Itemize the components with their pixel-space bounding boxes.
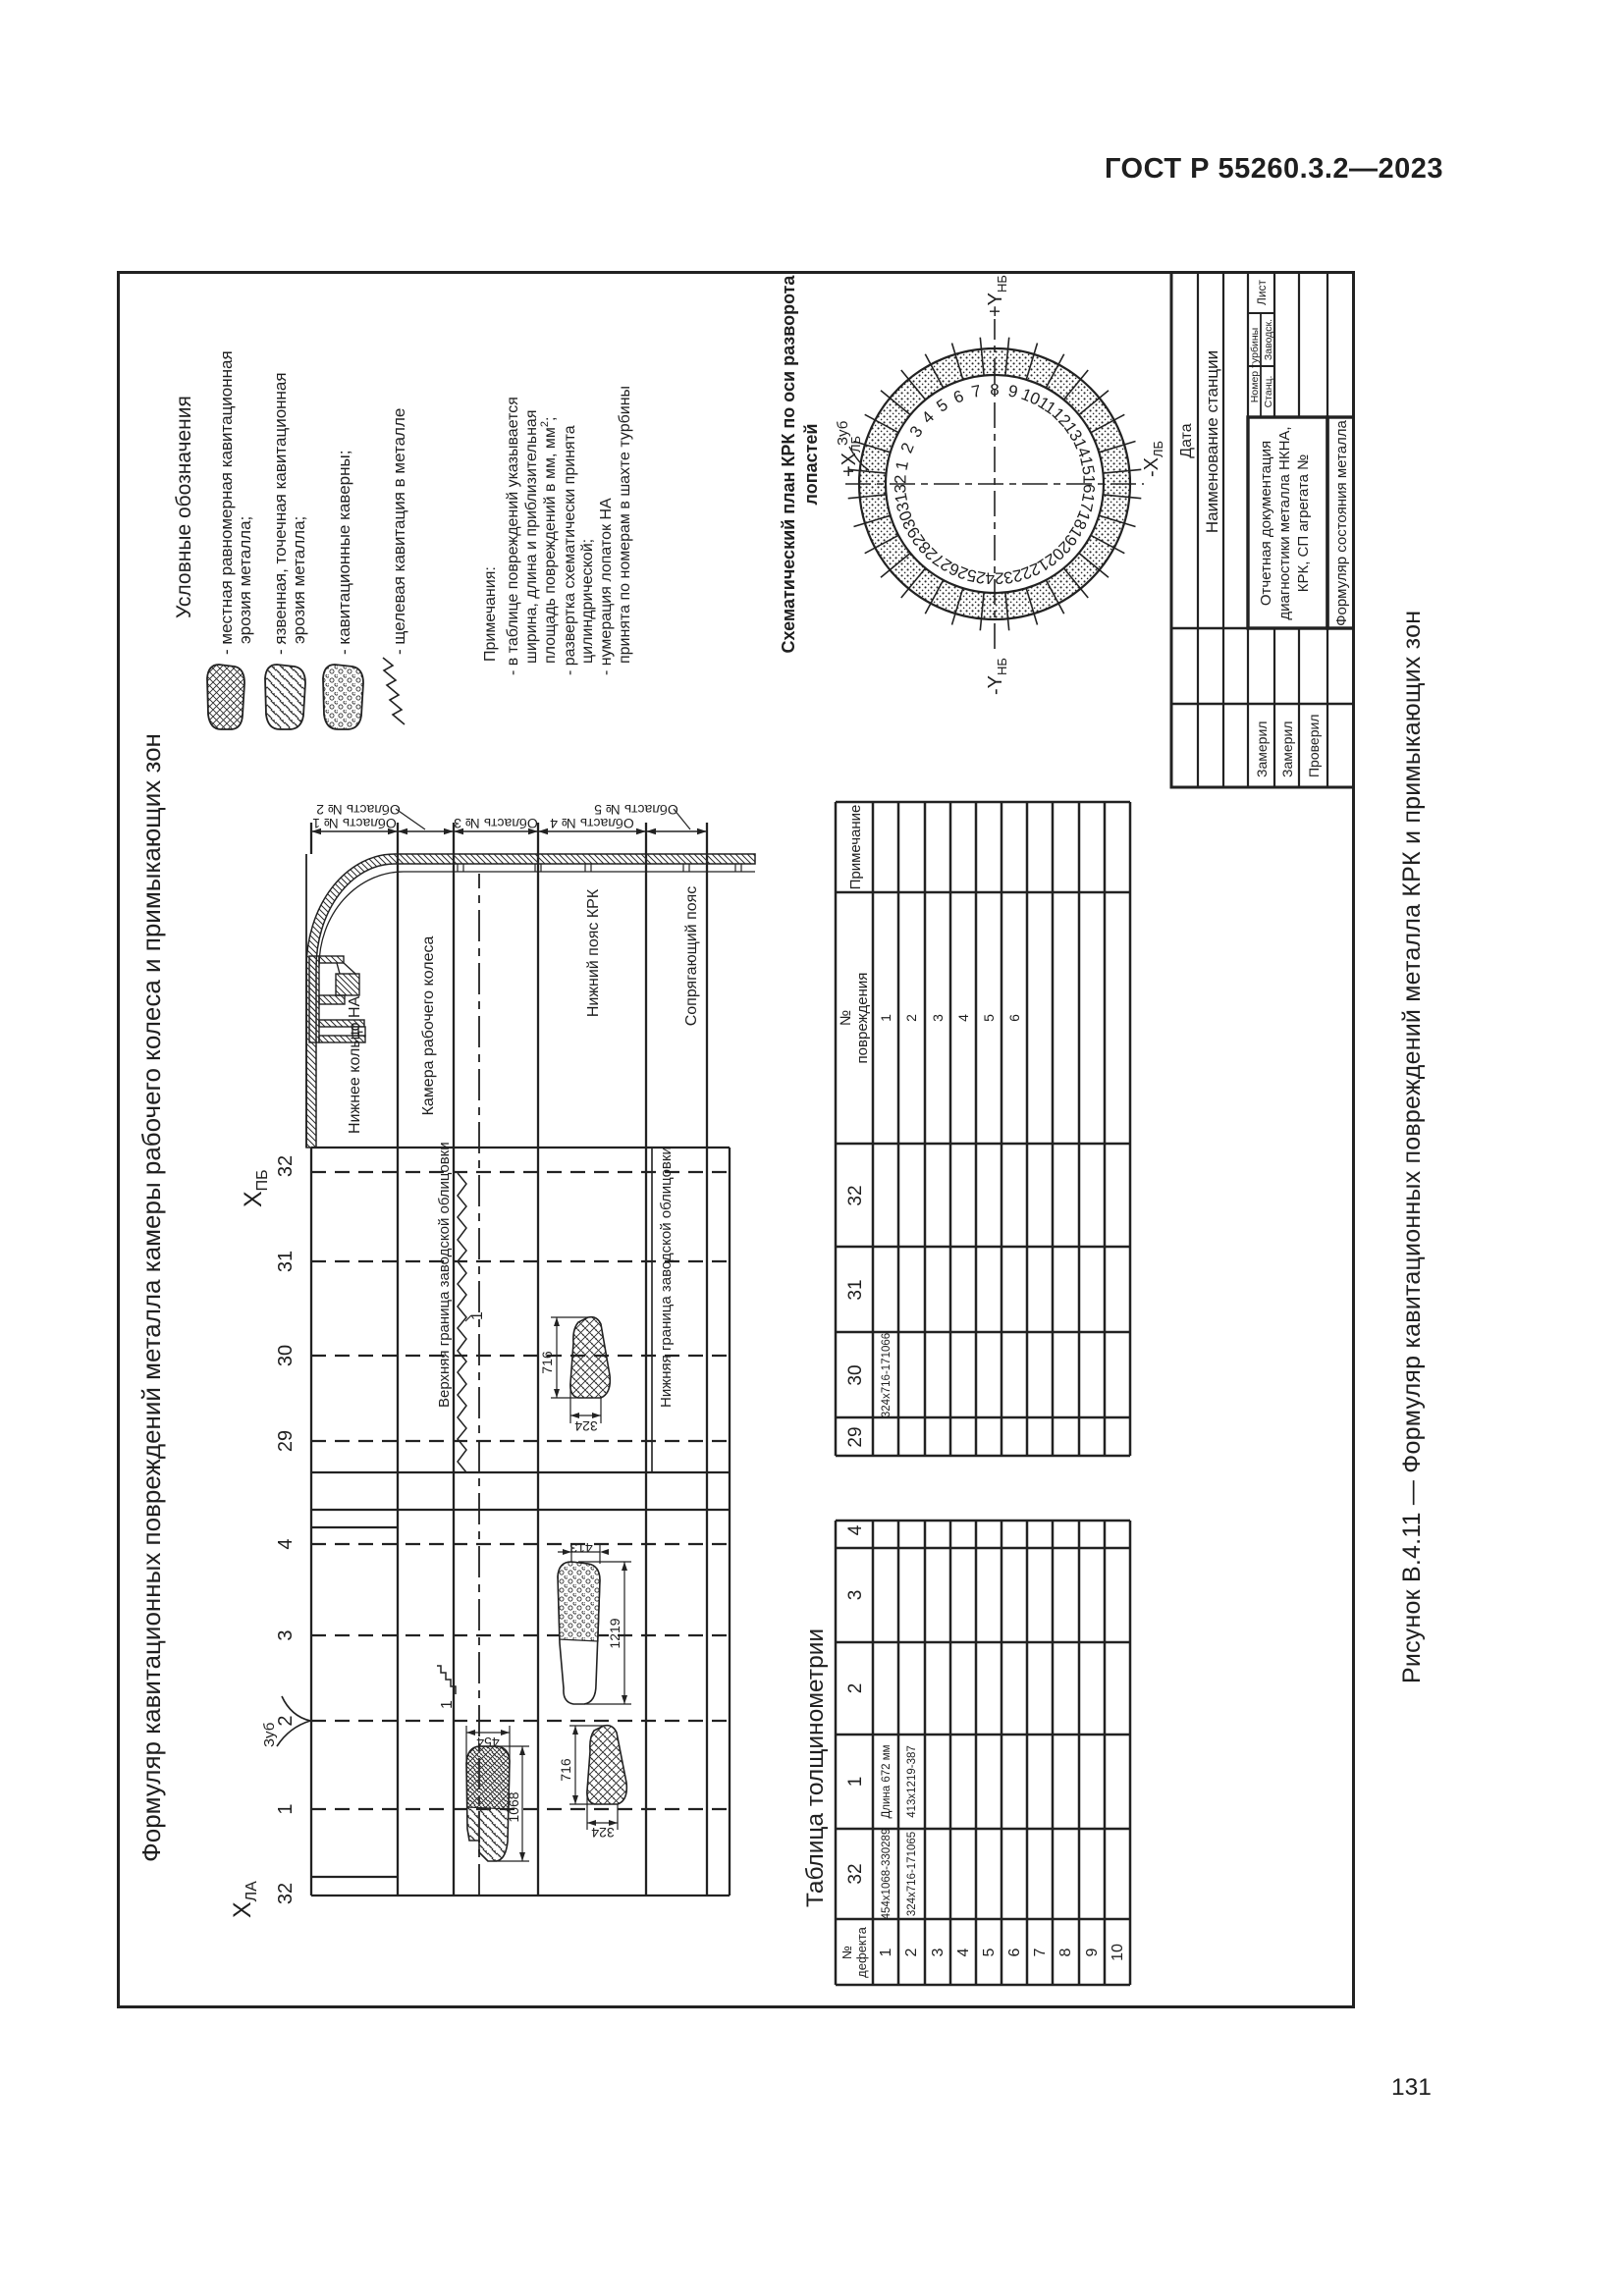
svg-text:Отчетная документация: Отчетная документация: [1258, 441, 1274, 606]
svg-text:31: 31: [845, 1279, 866, 1300]
svg-text:- местная равномерная кавитаци: - местная равномерная кавитационная: [217, 350, 236, 655]
svg-text:15: 15: [1076, 454, 1098, 476]
svg-text:Условные обозначения: Условные обозначения: [173, 396, 195, 618]
svg-text:+YНБ: +YНБ: [985, 275, 1009, 317]
svg-text:32: 32: [275, 1883, 297, 1904]
svg-text:1219: 1219: [607, 1618, 623, 1648]
svg-text:324: 324: [591, 1825, 615, 1841]
svg-text:эрозия металла;: эрозия металла;: [236, 516, 254, 644]
svg-text:413: 413: [569, 1540, 593, 1556]
svg-text:- язвенная, точечная кавитацио: - язвенная, точечная кавитационная: [271, 372, 290, 655]
svg-text:Верхняя граница заводской обли: Верхняя граница заводской облицовки: [436, 1142, 453, 1408]
svg-text:- развертка схематически приня: - развертка схематически принята: [562, 425, 578, 675]
svg-text:- кавитационные каверны;: - кавитационные каверны;: [335, 451, 353, 655]
svg-text:2: 2: [903, 1948, 920, 1956]
svg-text:5: 5: [981, 1014, 997, 1022]
svg-text:23: 23: [1002, 565, 1024, 587]
svg-text:3: 3: [930, 1014, 946, 1022]
svg-text:1: 1: [878, 1014, 893, 1022]
svg-text:Станц.: Станц.: [1263, 376, 1274, 408]
svg-text:№: №: [839, 1946, 854, 1959]
svg-text:ХЛА: ХЛА: [229, 1881, 260, 1918]
svg-text:3: 3: [275, 1629, 297, 1640]
svg-text:Область № 2: Область № 2: [316, 802, 401, 818]
svg-text:-ХЛБ: -ХЛБ: [1141, 441, 1165, 477]
svg-text:29: 29: [845, 1426, 866, 1447]
svg-text:8: 8: [1057, 1948, 1074, 1956]
svg-text:лопастей: лопастей: [801, 424, 821, 506]
svg-text:Замерил: Замерил: [1279, 721, 1295, 777]
svg-text:4: 4: [955, 1014, 971, 1022]
svg-text:Зуб: Зуб: [261, 1723, 278, 1747]
svg-text:Сопрягающий пояс: Сопрягающий пояс: [683, 886, 700, 1027]
svg-text:4: 4: [845, 1524, 866, 1535]
svg-text:Зуб: Зуб: [835, 421, 851, 446]
svg-text:Проверил: Проверил: [1306, 715, 1322, 777]
svg-text:1: 1: [439, 1700, 456, 1709]
svg-text:2: 2: [903, 1014, 919, 1022]
svg-text:Нижний пояс КРК: Нижний пояс КРК: [585, 888, 602, 1017]
svg-text:Дата: Дата: [1178, 423, 1195, 458]
svg-text:принята по номерам в шахте тур: принята по номерам в шахте турбины: [617, 386, 633, 664]
svg-text:413x1219-387: 413x1219-387: [906, 1745, 918, 1818]
svg-text:Номер турбины: Номер турбины: [1249, 328, 1261, 402]
svg-text:Область № 5: Область № 5: [594, 802, 678, 818]
svg-text:- щелевая кавитация в металле: - щелевая кавитация в металле: [390, 408, 408, 655]
svg-text:1: 1: [845, 1777, 866, 1788]
svg-text:32: 32: [845, 1863, 866, 1884]
svg-text:32: 32: [845, 1185, 866, 1205]
svg-text:- нумерация лопаток НА: - нумерация лопаток НА: [598, 498, 615, 675]
svg-text:Формуляр состояния металла: Формуляр состояния металла: [1333, 419, 1350, 625]
svg-text:6: 6: [1006, 1948, 1023, 1956]
svg-text:площадь повреждений в мм, мм2;: площадь повреждений в мм, мм2;: [539, 417, 559, 664]
svg-text:29: 29: [275, 1430, 297, 1452]
svg-text:диагностики металла НКНА,: диагностики металла НКНА,: [1276, 426, 1293, 619]
svg-text:Схематический план КРК по оси: Схематический план КРК по оси разворота: [779, 275, 798, 654]
svg-text:10: 10: [1110, 1944, 1126, 1961]
svg-text:2: 2: [845, 1683, 866, 1694]
svg-text:31: 31: [275, 1251, 297, 1272]
svg-text:Нижнее кольцо НА: Нижнее кольцо НА: [347, 995, 363, 1134]
svg-text:ширина, длина и приблизительна: ширина, длина и приблизительная: [523, 410, 540, 664]
svg-text:дефекта: дефекта: [854, 1926, 869, 1977]
svg-text:7: 7: [1032, 1948, 1049, 1956]
svg-text:32: 32: [275, 1155, 297, 1177]
svg-text:1: 1: [469, 1311, 486, 1320]
svg-text:Таблица толщинометрии: Таблица толщинометрии: [802, 1629, 829, 1907]
svg-text:2: 2: [275, 1715, 297, 1726]
svg-text:454x1068-330289: 454x1068-330289: [881, 1829, 893, 1920]
svg-text:324x716-171066: 324x716-171066: [881, 1333, 893, 1417]
svg-text:1: 1: [878, 1948, 894, 1956]
svg-text:716: 716: [558, 1758, 573, 1782]
svg-text:3: 3: [930, 1948, 947, 1956]
svg-text:324: 324: [574, 1418, 598, 1434]
svg-text:4: 4: [955, 1948, 972, 1956]
svg-text:№: №: [838, 1010, 854, 1026]
svg-text:Область № 3: Область № 3: [454, 816, 538, 831]
svg-text:-YНБ: -YНБ: [985, 658, 1009, 695]
svg-text:9: 9: [1084, 1948, 1101, 1956]
svg-text:1: 1: [275, 1803, 297, 1814]
svg-text:3: 3: [845, 1590, 866, 1601]
svg-text:Длина 672 мм: Длина 672 мм: [881, 1744, 893, 1818]
svg-text:324x716-171065: 324x716-171065: [906, 1832, 918, 1916]
svg-text:Лист: Лист: [1255, 279, 1269, 305]
svg-text:- в таблице повреждений указыв: - в таблице повреждений указывается: [505, 397, 521, 675]
svg-text:Нижняя граница заводской облиц: Нижняя граница заводской облицовки: [658, 1147, 675, 1408]
svg-text:Формуляр кавитационных поврежд: Формуляр кавитационных повреждений метал…: [136, 733, 166, 1862]
svg-text:Примечания:: Примечания:: [482, 566, 499, 662]
svg-text:4: 4: [275, 1538, 297, 1549]
svg-text:Заводск.: Заводск.: [1263, 319, 1274, 360]
svg-text:повреждения: повреждения: [854, 973, 871, 1064]
svg-text:30: 30: [275, 1345, 297, 1366]
svg-text:цилиндрической;: цилиндрической;: [579, 539, 596, 664]
svg-text:КРК, СП агрегата №: КРК, СП агрегата №: [1295, 454, 1312, 593]
svg-text:6: 6: [1006, 1014, 1022, 1022]
svg-text:эрозия металла;: эрозия металла;: [290, 516, 308, 644]
svg-text:Камера рабочего колеса: Камера рабочего колеса: [420, 936, 437, 1116]
svg-text:Замерил: Замерил: [1254, 721, 1270, 777]
svg-text:ХПБ: ХПБ: [240, 1169, 271, 1207]
svg-text:1068: 1068: [506, 1791, 521, 1822]
svg-text:31: 31: [892, 492, 913, 513]
svg-text:454: 454: [476, 1735, 500, 1750]
svg-text:Примечание: Примечание: [847, 805, 864, 890]
svg-text:5: 5: [981, 1948, 998, 1956]
svg-text:Наименование станции: Наименование станции: [1203, 350, 1221, 533]
svg-text:716: 716: [539, 1351, 555, 1374]
svg-text:30: 30: [845, 1364, 866, 1385]
